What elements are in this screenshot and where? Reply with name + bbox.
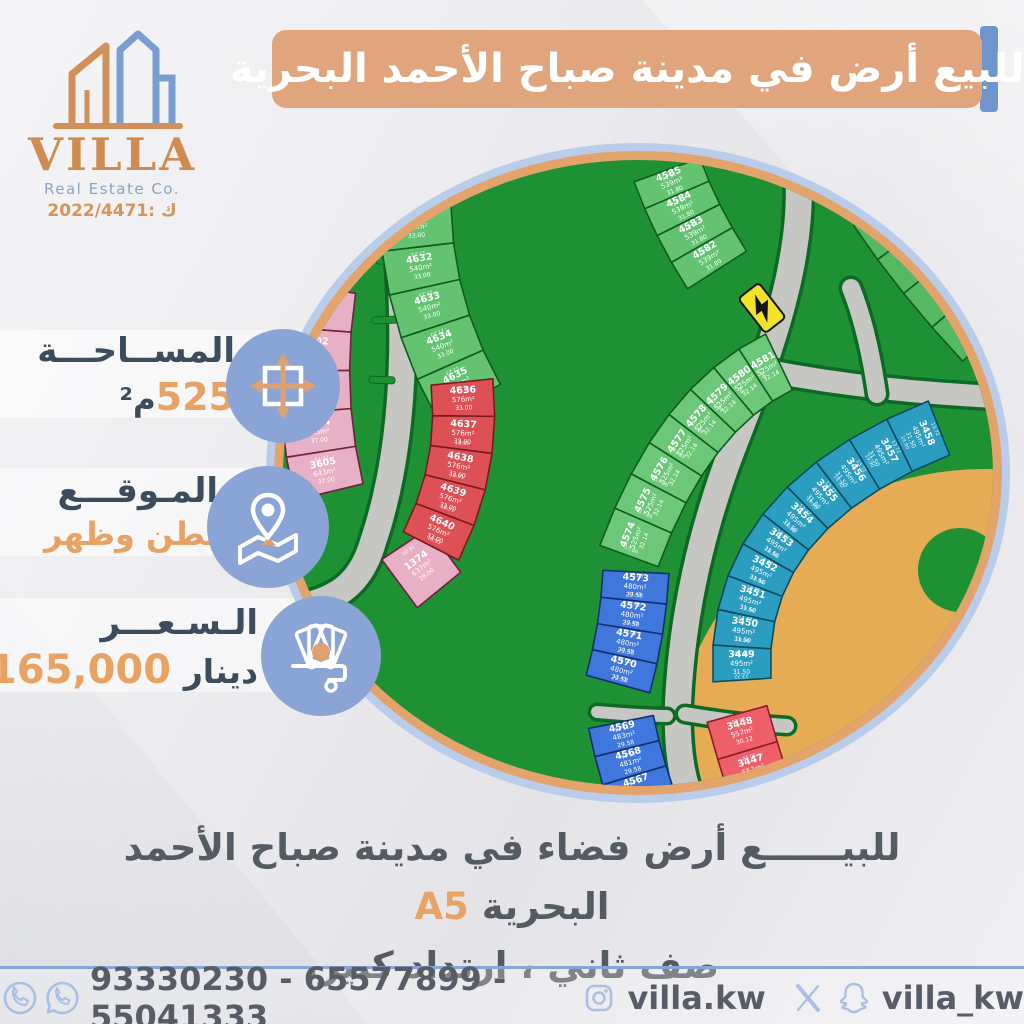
phone-numbers: 93330230 - 65577899 - 55041333	[90, 960, 555, 1024]
svg-text:576m²: 576m²	[451, 429, 475, 439]
instagram-icon	[579, 978, 619, 1018]
svg-text:576m²: 576m²	[452, 395, 476, 404]
instagram-group: villa.kw	[579, 978, 765, 1018]
map-plot: 4636576m²33.0018.91	[431, 379, 494, 417]
page-title: للبيع أرض في مدينة صباح الأحمد البحرية	[230, 46, 1024, 92]
info-row-area: المســاحـــة 525م²	[37, 332, 235, 419]
whatsapp-icon	[42, 978, 82, 1018]
area-value: 525	[156, 375, 235, 419]
area-label: المســاحـــة	[37, 332, 235, 371]
logo-license: 2022/4471: ك	[28, 201, 196, 221]
expand-arrows-icon	[245, 348, 321, 424]
phone-group: 93330230 - 65577899 - 55041333	[0, 960, 555, 1024]
svg-text:13.72: 13.72	[734, 673, 748, 679]
road-median-island	[369, 376, 395, 384]
svg-text:17.45: 17.45	[627, 591, 642, 598]
svg-text:33.00: 33.00	[455, 404, 473, 412]
phone-icon	[0, 978, 40, 1018]
social-group: villa_kw	[790, 978, 1024, 1018]
area-unit: م²	[119, 382, 155, 418]
description-line-1: للبيــــــع أرض فضاء في مدينة صباح الأحم…	[60, 818, 964, 936]
price-unit: دينار	[184, 652, 258, 691]
contact-footer: 93330230 - 65577899 - 55041333 villa.kw …	[0, 966, 1024, 1024]
location-label: المـوقـــع	[44, 472, 218, 511]
zone-highlight: A5	[415, 885, 469, 928]
svg-text:18.91: 18.91	[455, 385, 470, 392]
company-logo: VILLA Real Estate Co. 2022/4471: ك	[28, 16, 196, 221]
map-road	[597, 712, 667, 716]
svg-text:18.91: 18.91	[455, 440, 470, 447]
price-badge	[261, 596, 381, 716]
info-row-location: المـوقـــع بطن وظهر	[44, 472, 218, 553]
x-twitter-icon	[790, 980, 826, 1016]
map-pin-icon	[226, 485, 310, 569]
social-handle: villa_kw	[882, 979, 1024, 1017]
logo-name: VILLA	[28, 132, 196, 178]
poster: 4631540m²33.0017.234632540m²33.0017.2346…	[0, 0, 1024, 1024]
buildings-logo-icon	[32, 16, 192, 134]
snapchat-icon	[834, 978, 874, 1018]
road-median-island	[372, 316, 398, 324]
svg-text:15.00: 15.00	[628, 573, 643, 580]
money-icon	[279, 614, 363, 698]
title-banner: للبيع أرض في مدينة صباح الأحمد البحرية	[272, 30, 982, 108]
map-plot: 3449495m²31.5019.9013.72	[713, 645, 771, 682]
area-badge	[226, 329, 340, 443]
info-row-price: الـسـعـــر 165,000 دينار	[0, 604, 258, 693]
price-value: 165,000	[0, 647, 171, 693]
svg-text:495m²: 495m²	[730, 660, 753, 668]
site-map: 4631540m²33.0017.234632540m²33.0017.2346…	[265, 142, 1011, 804]
instagram-handle: villa.kw	[627, 979, 765, 1017]
location-badge	[207, 466, 329, 588]
location-value: بطن وظهر	[44, 515, 218, 553]
logo-subtitle: Real Estate Co.	[28, 180, 196, 198]
price-label: الـسـعـــر	[0, 604, 258, 643]
svg-text:19.90: 19.90	[734, 650, 748, 656]
